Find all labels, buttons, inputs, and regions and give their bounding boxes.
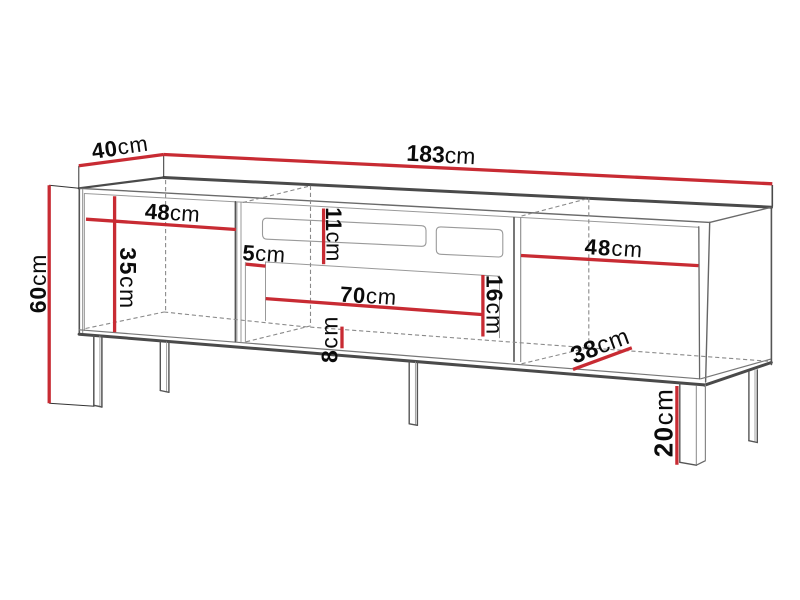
svg-text:48cm: 48cm bbox=[144, 198, 201, 227]
svg-text:16cm: 16cm bbox=[482, 275, 508, 335]
svg-text:183cm: 183cm bbox=[406, 140, 476, 170]
svg-text:70cm: 70cm bbox=[339, 281, 398, 310]
svg-text:8cm: 8cm bbox=[317, 315, 343, 363]
svg-text:20cm: 20cm bbox=[649, 388, 679, 458]
svg-text:11cm: 11cm bbox=[322, 207, 347, 262]
svg-text:5cm: 5cm bbox=[242, 240, 287, 268]
svg-text:35cm: 35cm bbox=[115, 247, 141, 309]
svg-text:48cm: 48cm bbox=[584, 233, 644, 262]
svg-text:60cm: 60cm bbox=[25, 254, 51, 313]
